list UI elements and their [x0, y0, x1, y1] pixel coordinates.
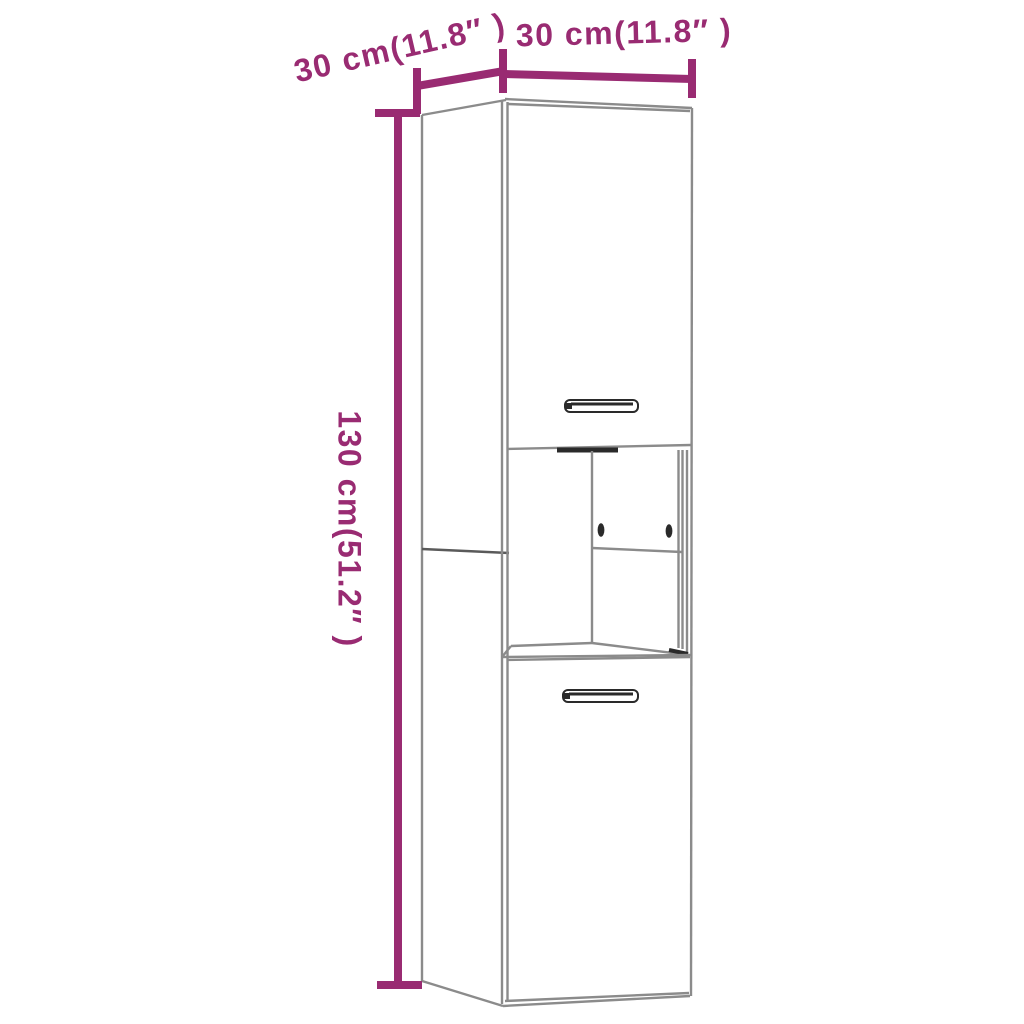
upper-door-handle — [565, 400, 638, 412]
compartment-floor-slant-edge — [592, 643, 689, 655]
shelf-pin-hole-right — [666, 524, 673, 538]
cabinet-line-drawing — [0, 0, 1024, 1024]
side-panel-top-edge — [422, 100, 506, 115]
right-edge — [691, 108, 692, 996]
side-panel-bottom-edge — [422, 981, 503, 1006]
dimension-diagram: 30 cm(11.8″ ) 30 cm(11.8″ ) 130 cm(51.2″… — [0, 0, 1024, 1024]
depth-line — [417, 71, 504, 86]
width-dimension-label: 30 cm(11.8″ ) — [515, 12, 732, 55]
height-dimension-line — [375, 113, 422, 985]
side-panel-joint-line — [422, 549, 509, 553]
height-dimension-label: 130 cm(51.2″ ) — [331, 410, 368, 647]
upper-handle-end-cap — [566, 403, 572, 409]
compartment-floor-back-edge — [511, 643, 592, 646]
upper-handle-bar — [565, 400, 638, 412]
back-panel-shelf-line — [592, 548, 682, 552]
upper-door — [507, 400, 691, 450]
lower-handle-end-cap — [564, 693, 570, 699]
lower-handle-bar — [563, 690, 638, 702]
cabinet-outline — [422, 99, 692, 1006]
lower-door — [507, 657, 690, 702]
width-dimension-line — [504, 59, 692, 98]
lower-door-handle — [563, 690, 638, 702]
shelf-pin-hole-left — [598, 523, 605, 537]
open-shelf-compartment — [502, 450, 692, 657]
width-line — [504, 74, 692, 79]
